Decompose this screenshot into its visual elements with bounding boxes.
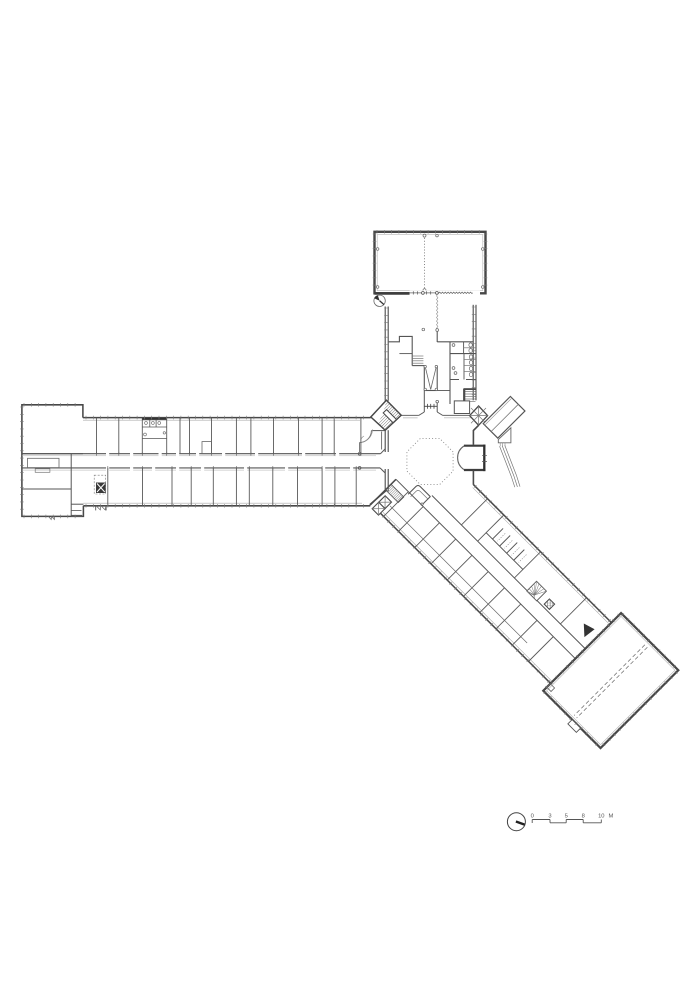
svg-text:0: 0 — [531, 813, 534, 819]
svg-text:M: M — [609, 813, 614, 819]
svg-text:10: 10 — [598, 813, 604, 819]
svg-text:8: 8 — [582, 813, 585, 819]
svg-text:5: 5 — [565, 813, 568, 819]
svg-text:3: 3 — [548, 813, 551, 819]
